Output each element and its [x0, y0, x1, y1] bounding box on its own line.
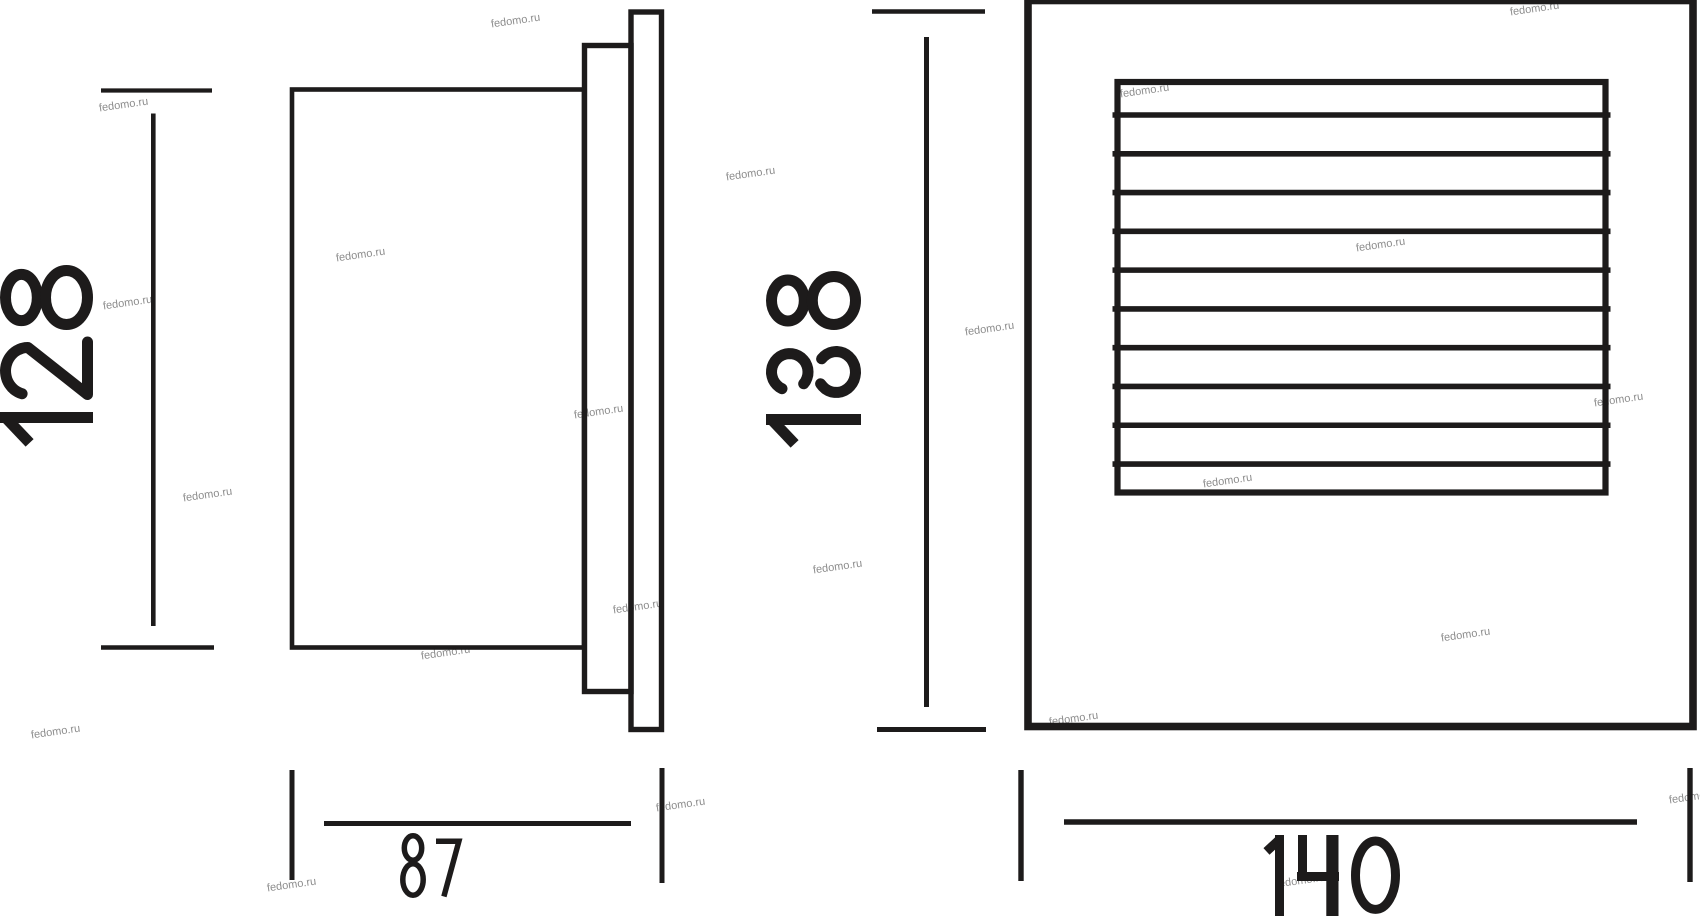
svg-text:fedomo.ru: fedomo.ru: [30, 723, 81, 742]
svg-text:fedomo.ru: fedomo.ru: [98, 96, 149, 115]
svg-text:fedomo.ru: fedomo.ru: [182, 486, 233, 505]
svg-text:fedomo.ru: fedomo.ru: [1355, 236, 1406, 255]
svg-text:fedomo.ru: fedomo.ru: [102, 294, 153, 313]
svg-text:fedomo.ru: fedomo.ru: [1593, 391, 1644, 410]
svg-text:fedomo.ru: fedomo.ru: [1440, 626, 1491, 645]
svg-text:fedomo.ru: fedomo.ru: [573, 403, 624, 422]
svg-text:fedomo.ru: fedomo.ru: [1202, 472, 1253, 491]
svg-text:fedomo.ru: fedomo.ru: [612, 598, 663, 617]
svg-text:fedomo.ru: fedomo.ru: [812, 558, 863, 577]
svg-text:fedomo.ru: fedomo.ru: [725, 165, 776, 184]
svg-text:fedomo.ru: fedomo.ru: [964, 320, 1015, 339]
svg-text:fedomo.ru: fedomo.ru: [1668, 788, 1700, 807]
svg-text:fedomo.ru: fedomo.ru: [335, 246, 386, 265]
svg-text:fedomo.ru: fedomo.ru: [490, 12, 541, 31]
